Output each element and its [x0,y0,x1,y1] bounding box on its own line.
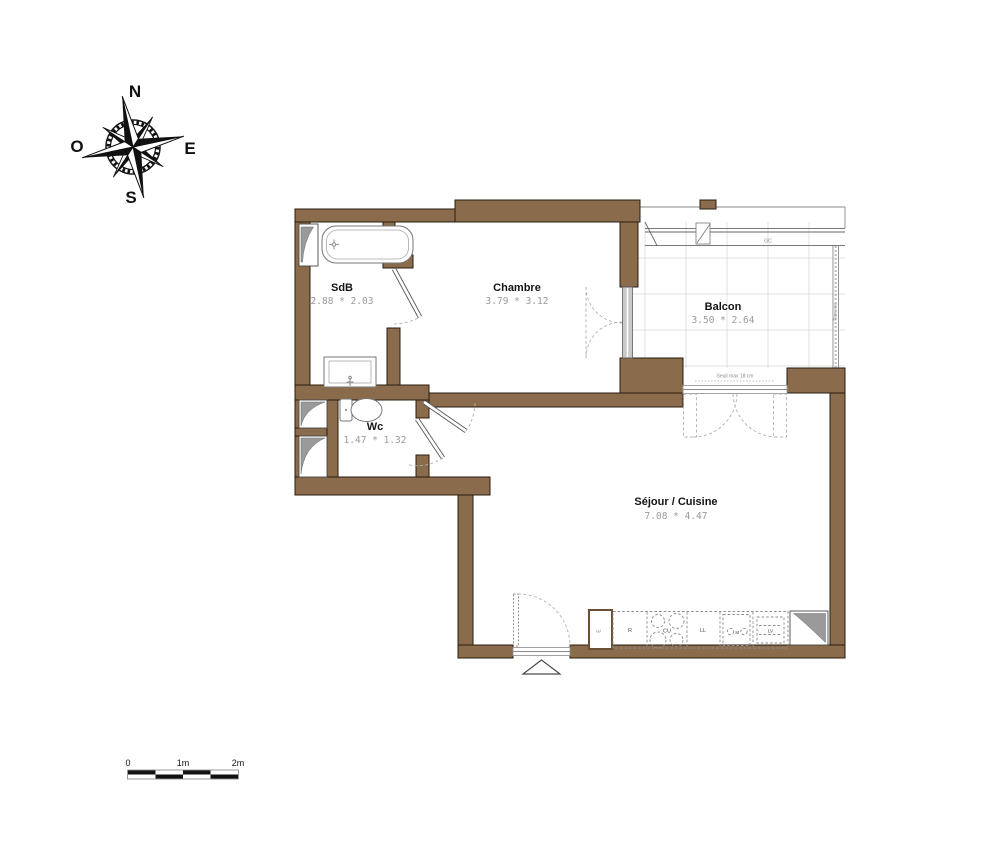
dishwasher-label: LV [768,629,774,635]
wc-name: Wc [367,421,384,433]
toilet [340,399,382,422]
compass-south-label: S [125,188,136,207]
chambre-dims: 3.79 * 3.12 [486,296,549,307]
scale-zero-label: 0 [125,758,130,768]
balcon-name: Balcon [705,301,742,313]
compass-rose-icon: N E S O [70,82,195,209]
balcony-floor: GC Pare vue [630,207,845,371]
privacy-screen: Pare vue [833,246,839,371]
balcony-railing: GC [645,222,845,246]
washer-label: LL [700,628,706,634]
floor-plan-drawing: N E S O GC [0,0,1000,857]
balcon-dims: 3.50 * 2.64 [692,315,755,326]
kitchen-duct-right [790,611,828,645]
entry-arrow-icon [523,660,560,674]
scale-one-label: 1m [177,758,190,768]
cooktop-label: CU [663,629,671,635]
sejour-name: Séjour / Cuisine [634,496,717,508]
compass-north-label: N [129,82,141,101]
wc-duct-lower [299,436,327,477]
sejour-dims: 7.08 * 4.47 [645,511,708,522]
compass-west-label: O [70,137,83,156]
fridge-label: R [628,628,632,634]
kitchen-duct-left: E [589,610,612,649]
chambre-balcony-window [586,287,633,358]
dishwasher: LV [757,617,784,643]
sejour-balcony-door: Seuil max 18 cm [683,374,787,438]
wc-duct-upper [299,400,327,428]
bathroom-sink [324,357,376,387]
privacy-screen-label: Pare vue [833,303,838,321]
railing-gc-label: GC [764,239,772,245]
scale-two-label: 2m [232,758,245,768]
sdb-dims: 2.88 * 2.03 [311,296,374,307]
kitchen-counter: E R CU LL M LV [589,610,788,649]
kitchen-sink: M [723,615,750,646]
scale-bar: 0 1m 2m [125,758,244,779]
wc-dims: 1.47 * 1.32 [344,435,407,446]
mixer-label: M [735,630,739,635]
floor-plan-page: N E S O GC [0,0,1000,857]
entry-door [513,594,570,674]
sdb-door [394,269,420,324]
chambre-name: Chambre [493,282,541,294]
threshold-label: Seuil max 18 cm [717,374,754,380]
compass-east-label: E [184,139,195,158]
bathtub-duct [299,224,318,266]
bathtub [322,226,413,263]
sdb-name: SdB [331,282,353,294]
